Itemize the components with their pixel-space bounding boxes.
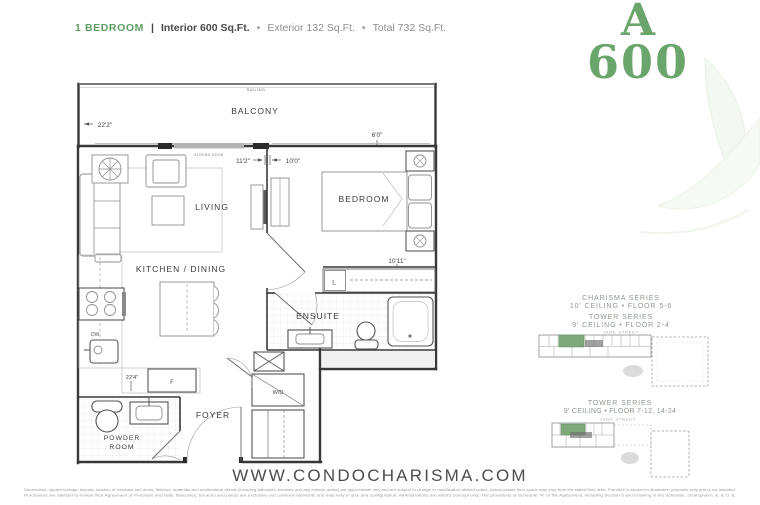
shaft [254, 352, 284, 371]
bedroom: BEDROOM 10'0" L 10'11" [267, 146, 436, 294]
dining-table [160, 282, 218, 336]
keyplan1-title-1: CHARISMA SERIES [582, 295, 660, 302]
keyplan2-street-label: JANE STREET [600, 417, 636, 422]
keyplan2-title-2: 9' CEILING • FLOOR 7-12, 14-24 [564, 408, 676, 415]
svg-text:6'0": 6'0" [372, 132, 383, 139]
svg-text:10'0": 10'0" [286, 158, 301, 165]
sliding-door-frame [158, 143, 172, 149]
vanity-sink [288, 327, 332, 348]
nightstand-lamp [406, 151, 434, 171]
balcony: RAILING BALCONY 22'2" 6'0" [79, 84, 436, 147]
svg-text:10'11": 10'11" [388, 258, 406, 265]
foyer-label: FOYER [196, 410, 230, 420]
svg-text:22'2": 22'2" [98, 122, 113, 129]
svg-text:22'4": 22'4" [126, 375, 138, 381]
keyplan1-title-2: 10' CEILING • FLOOR 5-6 [570, 303, 672, 310]
dim-balcony-depth: 6'0" [372, 132, 383, 146]
linen-label: L [332, 280, 336, 287]
nightstand-lamp [406, 231, 434, 251]
keyplan2-title-1: TOWER SERIES [588, 400, 652, 407]
powder-room: POWDER ROOM [78, 397, 180, 460]
floorplan-brochure-page: 1 BEDROOM | Interior 600 Sq.Ft. • Exteri… [0, 0, 760, 505]
keyplan1-marker [623, 365, 643, 377]
coffee-table [152, 196, 184, 225]
keyplan1-unit-highlight [559, 335, 584, 347]
railing-label: RAILING [247, 87, 266, 92]
floorplan-canvas: RAILING BALCONY 22'2" 6'0" SLIDING DOOR [0, 0, 760, 505]
keyplan1-title-4: 9' CEILING • FLOOR 2-4 [572, 322, 670, 329]
sliding-door-panel [174, 144, 244, 149]
foyer-closet [252, 410, 304, 458]
stove [79, 288, 126, 320]
balcony-label: BALCONY [231, 106, 279, 116]
disclaimer-line-2: Purchasers are advised to review their A… [24, 494, 736, 498]
powder-room-label-2: ROOM [109, 444, 134, 451]
bathtub [388, 297, 433, 346]
fridge: F [148, 369, 196, 392]
bedroom-closet: L [323, 267, 436, 292]
living-label: LIVING [195, 202, 229, 212]
dim-living-width: 11'2" [236, 155, 265, 165]
vanity-sink [130, 398, 168, 424]
powder-room-label-1: POWDER [104, 435, 141, 442]
foyer: W/D FOYER [187, 352, 304, 461]
ensuite: ENSUITE [267, 293, 436, 350]
disclaimer-line-1: Dimensions, square footage, layouts, loc… [24, 488, 736, 492]
living-room: LIVING 11'2" [80, 155, 267, 262]
keyplan1-title-3: TOWER SERIES [589, 314, 653, 321]
dim-kitchen-run: 22'4" [126, 375, 138, 391]
disclaimer: Dimensions, square footage, layouts, loc… [24, 488, 736, 498]
svg-text:11'2": 11'2" [236, 158, 251, 165]
dishwasher-label: DW [91, 332, 100, 338]
sliding-door-label: SLIDING DOOR [194, 153, 224, 157]
kitchen-dining-label: KITCHEN / DINING [136, 264, 226, 274]
keyplan1-street-label: JANE STREET [603, 330, 639, 335]
kitchen-dining: DW F 22'4" KITCHEN / DINING [79, 255, 226, 393]
plant [92, 155, 128, 183]
kitchen-sink [84, 340, 118, 363]
bedroom-label: BEDROOM [339, 194, 390, 204]
svg-text:F: F [170, 380, 174, 386]
ensuite-label: ENSUITE [296, 311, 340, 321]
bedroom-door [267, 233, 305, 290]
keyplan-charisma: CHARISMA SERIES 10' CEILING • FLOOR 5-6 … [539, 295, 708, 386]
leaf-watermark-icon [640, 58, 760, 233]
keyplan2-marker [621, 452, 639, 464]
svg-text:W/D: W/D [273, 390, 284, 396]
dim-bedroom-width: 10'0" [270, 155, 301, 165]
dim-balcony-width: 22'2" [84, 122, 113, 129]
keyplan1-building [539, 335, 708, 386]
website-url: WWW.CONDOCHARISMA.COM [0, 466, 760, 486]
tv-console [251, 185, 267, 229]
wall-cavity [322, 351, 435, 367]
armchair [146, 155, 186, 187]
